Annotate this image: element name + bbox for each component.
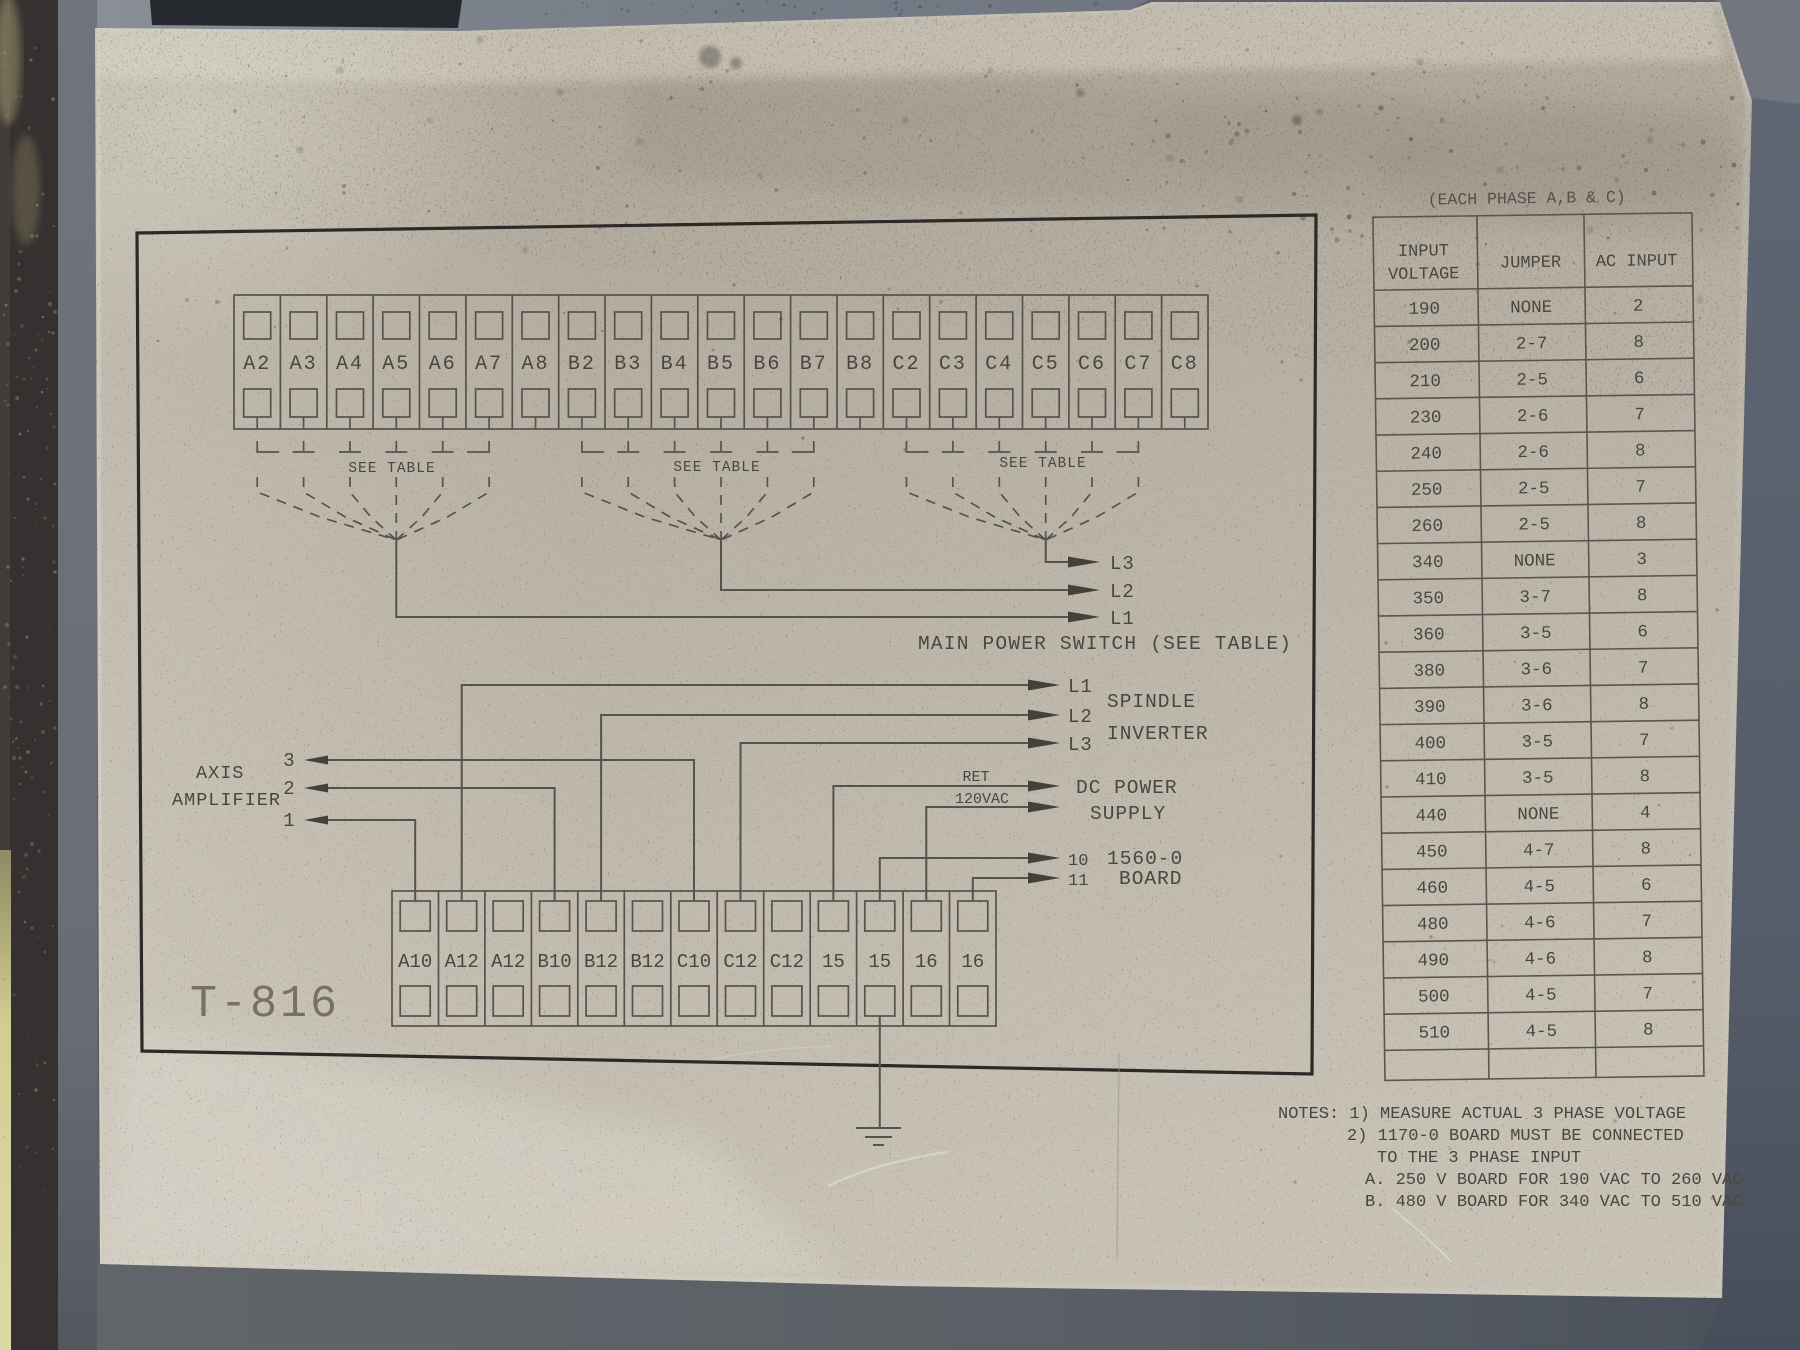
- svg-text:B3: B3: [614, 353, 642, 376]
- svg-text:JUMPER: JUMPER: [1500, 254, 1561, 274]
- svg-text:NONE: NONE: [1514, 551, 1556, 572]
- svg-text:SEE TABLE: SEE TABLE: [999, 456, 1086, 472]
- svg-text:B12: B12: [630, 951, 664, 973]
- svg-text:L2: L2: [1110, 581, 1135, 603]
- svg-text:2: 2: [283, 778, 294, 800]
- svg-text:A3: A3: [290, 353, 318, 376]
- svg-text:8: 8: [1642, 948, 1653, 968]
- svg-text:3: 3: [283, 750, 294, 772]
- svg-text:L3: L3: [1068, 734, 1093, 756]
- svg-text:2) 1170-0 BOARD MUST BE CONNEC: 2) 1170-0 BOARD MUST BE CONNECTED: [1347, 1127, 1684, 1146]
- svg-text:3-5: 3-5: [1521, 732, 1553, 752]
- svg-text:SUPPLY: SUPPLY: [1090, 803, 1166, 825]
- svg-text:8: 8: [1636, 514, 1647, 534]
- svg-text:3-6: 3-6: [1521, 696, 1553, 716]
- svg-text:4-5: 4-5: [1525, 1022, 1557, 1042]
- svg-text:500: 500: [1418, 987, 1450, 1007]
- svg-text:SEE TABLE: SEE TABLE: [348, 461, 435, 477]
- svg-text:2-7: 2-7: [1516, 334, 1548, 354]
- svg-text:260: 260: [1411, 517, 1443, 537]
- svg-text:T-816: T-816: [190, 979, 340, 1030]
- svg-text:2-5: 2-5: [1516, 370, 1548, 390]
- svg-text:C10: C10: [677, 951, 711, 973]
- svg-text:510: 510: [1418, 1023, 1450, 1043]
- svg-text:3-5: 3-5: [1520, 624, 1552, 644]
- svg-text:390: 390: [1414, 698, 1446, 718]
- svg-text:4-6: 4-6: [1524, 949, 1556, 969]
- svg-text:3-5: 3-5: [1522, 768, 1554, 788]
- svg-text:8: 8: [1640, 840, 1651, 860]
- svg-text:480: 480: [1417, 915, 1449, 935]
- svg-text:B4: B4: [661, 353, 689, 376]
- svg-text:4: 4: [1640, 803, 1651, 823]
- svg-text:7: 7: [1638, 659, 1649, 679]
- svg-text:SEE TABLE: SEE TABLE: [673, 460, 760, 476]
- svg-text:2-6: 2-6: [1517, 407, 1549, 427]
- svg-text:190: 190: [1408, 299, 1440, 319]
- svg-text:8: 8: [1637, 586, 1648, 606]
- svg-text:2: 2: [1633, 297, 1644, 317]
- svg-text:240: 240: [1410, 444, 1442, 464]
- svg-text:MAIN POWER SWITCH (SEE TABLE): MAIN POWER SWITCH (SEE TABLE): [918, 633, 1292, 655]
- svg-text:C4: C4: [985, 353, 1013, 376]
- svg-text:16: 16: [961, 951, 984, 973]
- svg-text:B12: B12: [584, 951, 618, 973]
- svg-text:6: 6: [1634, 369, 1645, 389]
- svg-text:RET: RET: [962, 769, 989, 786]
- svg-text:A8: A8: [521, 353, 549, 376]
- svg-text:AXIS: AXIS: [196, 763, 244, 784]
- svg-text:6: 6: [1641, 876, 1652, 896]
- svg-text:SPINDLE: SPINDLE: [1107, 691, 1196, 713]
- svg-text:BOARD: BOARD: [1119, 868, 1183, 890]
- svg-text:TO THE 3 PHASE INPUT: TO THE 3 PHASE INPUT: [1377, 1149, 1581, 1168]
- svg-text:INVERTER: INVERTER: [1107, 723, 1209, 745]
- svg-text:490: 490: [1417, 951, 1449, 971]
- svg-text:NOTES: 1) MEASURE ACTUAL 3 PHA: NOTES: 1) MEASURE ACTUAL 3 PHASE VOLTAGE: [1278, 1105, 1686, 1124]
- svg-text:8: 8: [1633, 333, 1644, 353]
- svg-text:380: 380: [1413, 661, 1445, 681]
- svg-text:2-5: 2-5: [1518, 515, 1550, 535]
- svg-text:7: 7: [1642, 984, 1653, 1004]
- svg-text:B2: B2: [568, 353, 596, 376]
- svg-text:15: 15: [822, 951, 845, 973]
- svg-text:B6: B6: [753, 353, 781, 376]
- svg-text:250: 250: [1411, 480, 1443, 500]
- svg-text:A5: A5: [382, 353, 410, 376]
- svg-text:1: 1: [283, 810, 294, 832]
- svg-text:L1: L1: [1110, 608, 1135, 630]
- svg-text:340: 340: [1412, 553, 1444, 573]
- svg-text:C7: C7: [1124, 353, 1152, 376]
- svg-text:8: 8: [1638, 695, 1649, 715]
- svg-text:7: 7: [1634, 405, 1645, 425]
- svg-text:120VAC: 120VAC: [955, 791, 1009, 808]
- svg-text:2-6: 2-6: [1517, 443, 1549, 463]
- svg-text:450: 450: [1416, 842, 1448, 862]
- svg-text:B. 480 V BOARD FOR 340 VAC TO: B. 480 V BOARD FOR 340 VAC TO 510 VAC: [1365, 1193, 1742, 1212]
- svg-text:8: 8: [1635, 441, 1646, 461]
- svg-text:10: 10: [1068, 852, 1088, 871]
- svg-text:440: 440: [1415, 806, 1447, 826]
- svg-text:8: 8: [1643, 1021, 1654, 1041]
- svg-text:DC POWER: DC POWER: [1076, 777, 1178, 799]
- svg-text:210: 210: [1409, 372, 1441, 392]
- svg-text:A6: A6: [429, 353, 457, 376]
- svg-text:350: 350: [1412, 589, 1444, 609]
- svg-text:A10: A10: [398, 951, 432, 973]
- svg-text:C3: C3: [939, 353, 967, 376]
- svg-text:AC INPUT: AC INPUT: [1596, 252, 1678, 272]
- svg-text:7: 7: [1635, 478, 1646, 498]
- svg-text:NONE: NONE: [1517, 805, 1559, 826]
- svg-text:7: 7: [1641, 912, 1652, 932]
- svg-text:A7: A7: [475, 353, 503, 376]
- svg-text:C12: C12: [723, 951, 757, 973]
- svg-text:B8: B8: [846, 353, 874, 376]
- svg-text:VOLTAGE: VOLTAGE: [1388, 265, 1460, 285]
- svg-text:INPUT: INPUT: [1398, 242, 1449, 262]
- svg-text:4-5: 4-5: [1523, 877, 1555, 897]
- svg-text:230: 230: [1410, 408, 1442, 428]
- svg-text:460: 460: [1416, 879, 1448, 899]
- svg-text:(EACH PHASE A,B & C): (EACH PHASE A,B & C): [1428, 188, 1626, 210]
- svg-text:200: 200: [1409, 336, 1441, 356]
- svg-text:A12: A12: [491, 951, 525, 973]
- svg-text:AMPLIFIER: AMPLIFIER: [172, 790, 281, 811]
- svg-text:2-5: 2-5: [1518, 479, 1550, 499]
- svg-text:L3: L3: [1110, 553, 1135, 575]
- svg-text:L1: L1: [1068, 676, 1093, 698]
- svg-text:1560-0: 1560-0: [1107, 848, 1183, 870]
- svg-text:B10: B10: [537, 951, 571, 973]
- svg-text:B7: B7: [800, 353, 828, 376]
- svg-text:A4: A4: [336, 353, 364, 376]
- svg-text:7: 7: [1639, 731, 1650, 751]
- svg-text:8: 8: [1639, 767, 1650, 787]
- svg-text:16: 16: [915, 951, 938, 973]
- svg-text:6: 6: [1637, 622, 1648, 642]
- svg-text:A12: A12: [445, 951, 479, 973]
- svg-text:C5: C5: [1032, 353, 1060, 376]
- svg-text:4-6: 4-6: [1524, 913, 1556, 933]
- svg-text:C2: C2: [892, 353, 920, 376]
- svg-text:3-6: 3-6: [1520, 660, 1552, 680]
- svg-text:11: 11: [1068, 872, 1088, 891]
- svg-text:4-5: 4-5: [1525, 986, 1557, 1006]
- svg-text:3: 3: [1636, 550, 1647, 570]
- svg-text:A. 250 V BOARD FOR 190 VAC TO: A. 250 V BOARD FOR 190 VAC TO 260 VAC: [1365, 1171, 1742, 1190]
- svg-text:4-7: 4-7: [1523, 841, 1555, 861]
- svg-text:C8: C8: [1171, 353, 1199, 376]
- svg-text:410: 410: [1415, 770, 1447, 790]
- svg-text:360: 360: [1413, 625, 1445, 645]
- svg-text:NONE: NONE: [1510, 298, 1552, 319]
- svg-text:C6: C6: [1078, 353, 1106, 376]
- svg-text:3-7: 3-7: [1519, 588, 1551, 608]
- svg-text:C12: C12: [770, 951, 804, 973]
- svg-text:400: 400: [1414, 734, 1446, 754]
- svg-text:15: 15: [868, 951, 891, 973]
- svg-text:L2: L2: [1068, 706, 1093, 728]
- svg-text:B5: B5: [707, 353, 735, 376]
- svg-text:A2: A2: [243, 353, 271, 376]
